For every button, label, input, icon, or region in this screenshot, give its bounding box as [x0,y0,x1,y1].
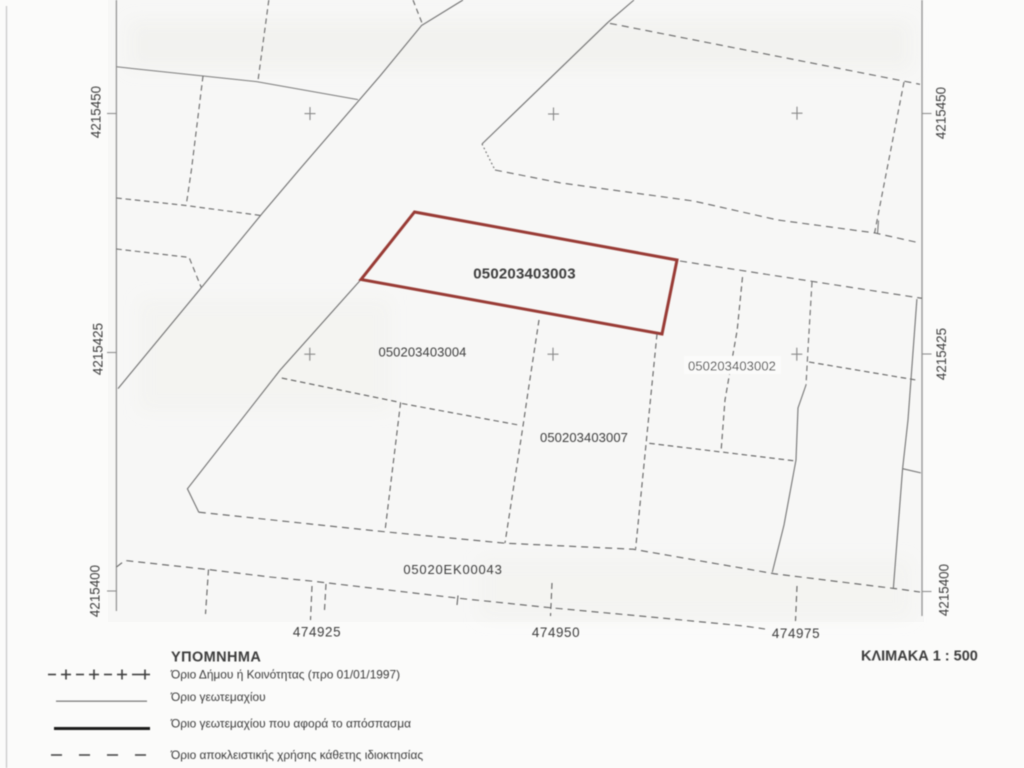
svg-text:4215450: 4215450 [934,87,949,139]
svg-text:050203403004: 050203403004 [379,345,467,360]
svg-text:050203403007: 050203403007 [540,430,628,445]
svg-text:4215450: 4215450 [89,86,104,138]
svg-text:Όριο γεωτεμαχίου που αφορά το: Όριο γεωτεμαχίου που αφορά το απόσπασμα [170,717,411,731]
svg-text:ΥΠΟΜΝΗΜΑ: ΥΠΟΜΝΗΜΑ [171,650,261,666]
svg-text:Όριο γεωτεμαχίου: Όριο γεωτεμαχίου [170,690,266,704]
svg-text:4215400: 4215400 [87,565,102,617]
svg-text:05020EK00043: 05020EK00043 [403,562,502,577]
svg-text:ΚΛΙΜΑΚΑ 1 : 500: ΚΛΙΜΑΚΑ 1 : 500 [861,649,978,665]
svg-text:474925: 474925 [293,625,341,640]
svg-text:050203403002: 050203403002 [688,359,776,374]
svg-text:4215425: 4215425 [90,323,105,375]
svg-text:4215425: 4215425 [934,328,949,380]
svg-text:4215400: 4215400 [937,564,952,616]
svg-text:Όριο αποκλειστικής χρήσης κάθε: Όριο αποκλειστικής χρήσης κάθετης ιδιοκτ… [170,748,423,762]
svg-text:474975: 474975 [772,626,820,641]
svg-text:474950: 474950 [532,625,580,640]
svg-text:050203403003: 050203403003 [473,266,576,283]
svg-text:Όριο Δήμου ή Κοινότητας (προ 0: Όριο Δήμου ή Κοινότητας (προ 01/01/1997) [170,668,400,682]
